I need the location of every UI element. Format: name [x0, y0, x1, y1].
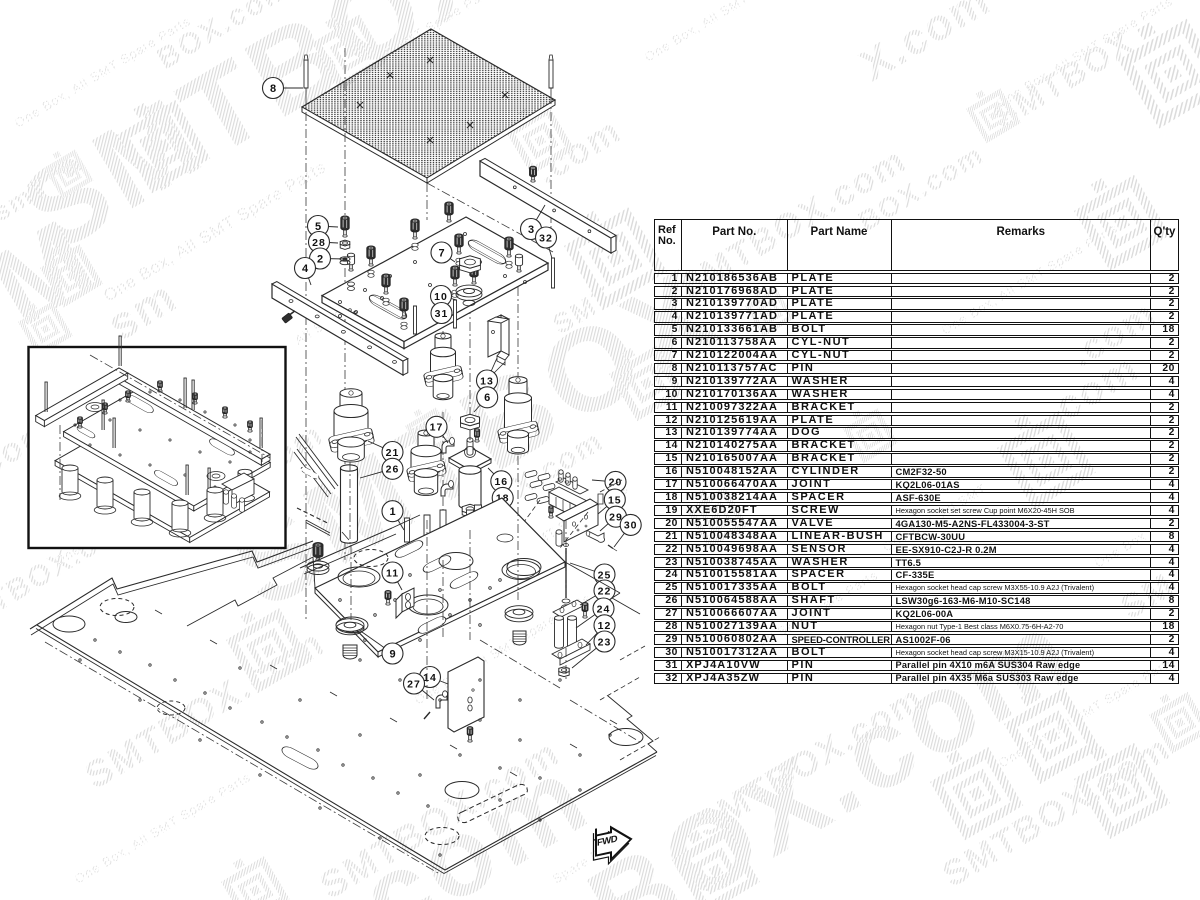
svg-text:17: 17 — [430, 422, 444, 434]
svg-text:9: 9 — [389, 648, 395, 660]
svg-text:13: 13 — [480, 375, 494, 387]
svg-text:28: 28 — [312, 237, 326, 249]
svg-text:6: 6 — [484, 392, 490, 404]
svg-text:12: 12 — [598, 620, 612, 632]
svg-text:10: 10 — [434, 291, 448, 303]
svg-text:21: 21 — [386, 447, 400, 459]
svg-text:11: 11 — [386, 567, 399, 579]
svg-text:31: 31 — [435, 308, 449, 320]
svg-text:3: 3 — [528, 224, 534, 236]
svg-text:20: 20 — [609, 477, 623, 489]
svg-text:4: 4 — [302, 263, 309, 275]
svg-text:1: 1 — [389, 506, 395, 518]
svg-text:26: 26 — [386, 464, 400, 476]
svg-text:15: 15 — [608, 494, 622, 506]
svg-text:24: 24 — [597, 603, 611, 615]
svg-text:30: 30 — [624, 520, 638, 532]
svg-text:16: 16 — [494, 476, 508, 488]
svg-text:7: 7 — [438, 247, 444, 259]
svg-text:23: 23 — [598, 636, 612, 648]
svg-text:14: 14 — [423, 672, 437, 684]
svg-text:2: 2 — [317, 253, 323, 265]
svg-text:8: 8 — [270, 83, 276, 95]
svg-text:32: 32 — [539, 232, 553, 244]
svg-text:27: 27 — [407, 678, 421, 690]
